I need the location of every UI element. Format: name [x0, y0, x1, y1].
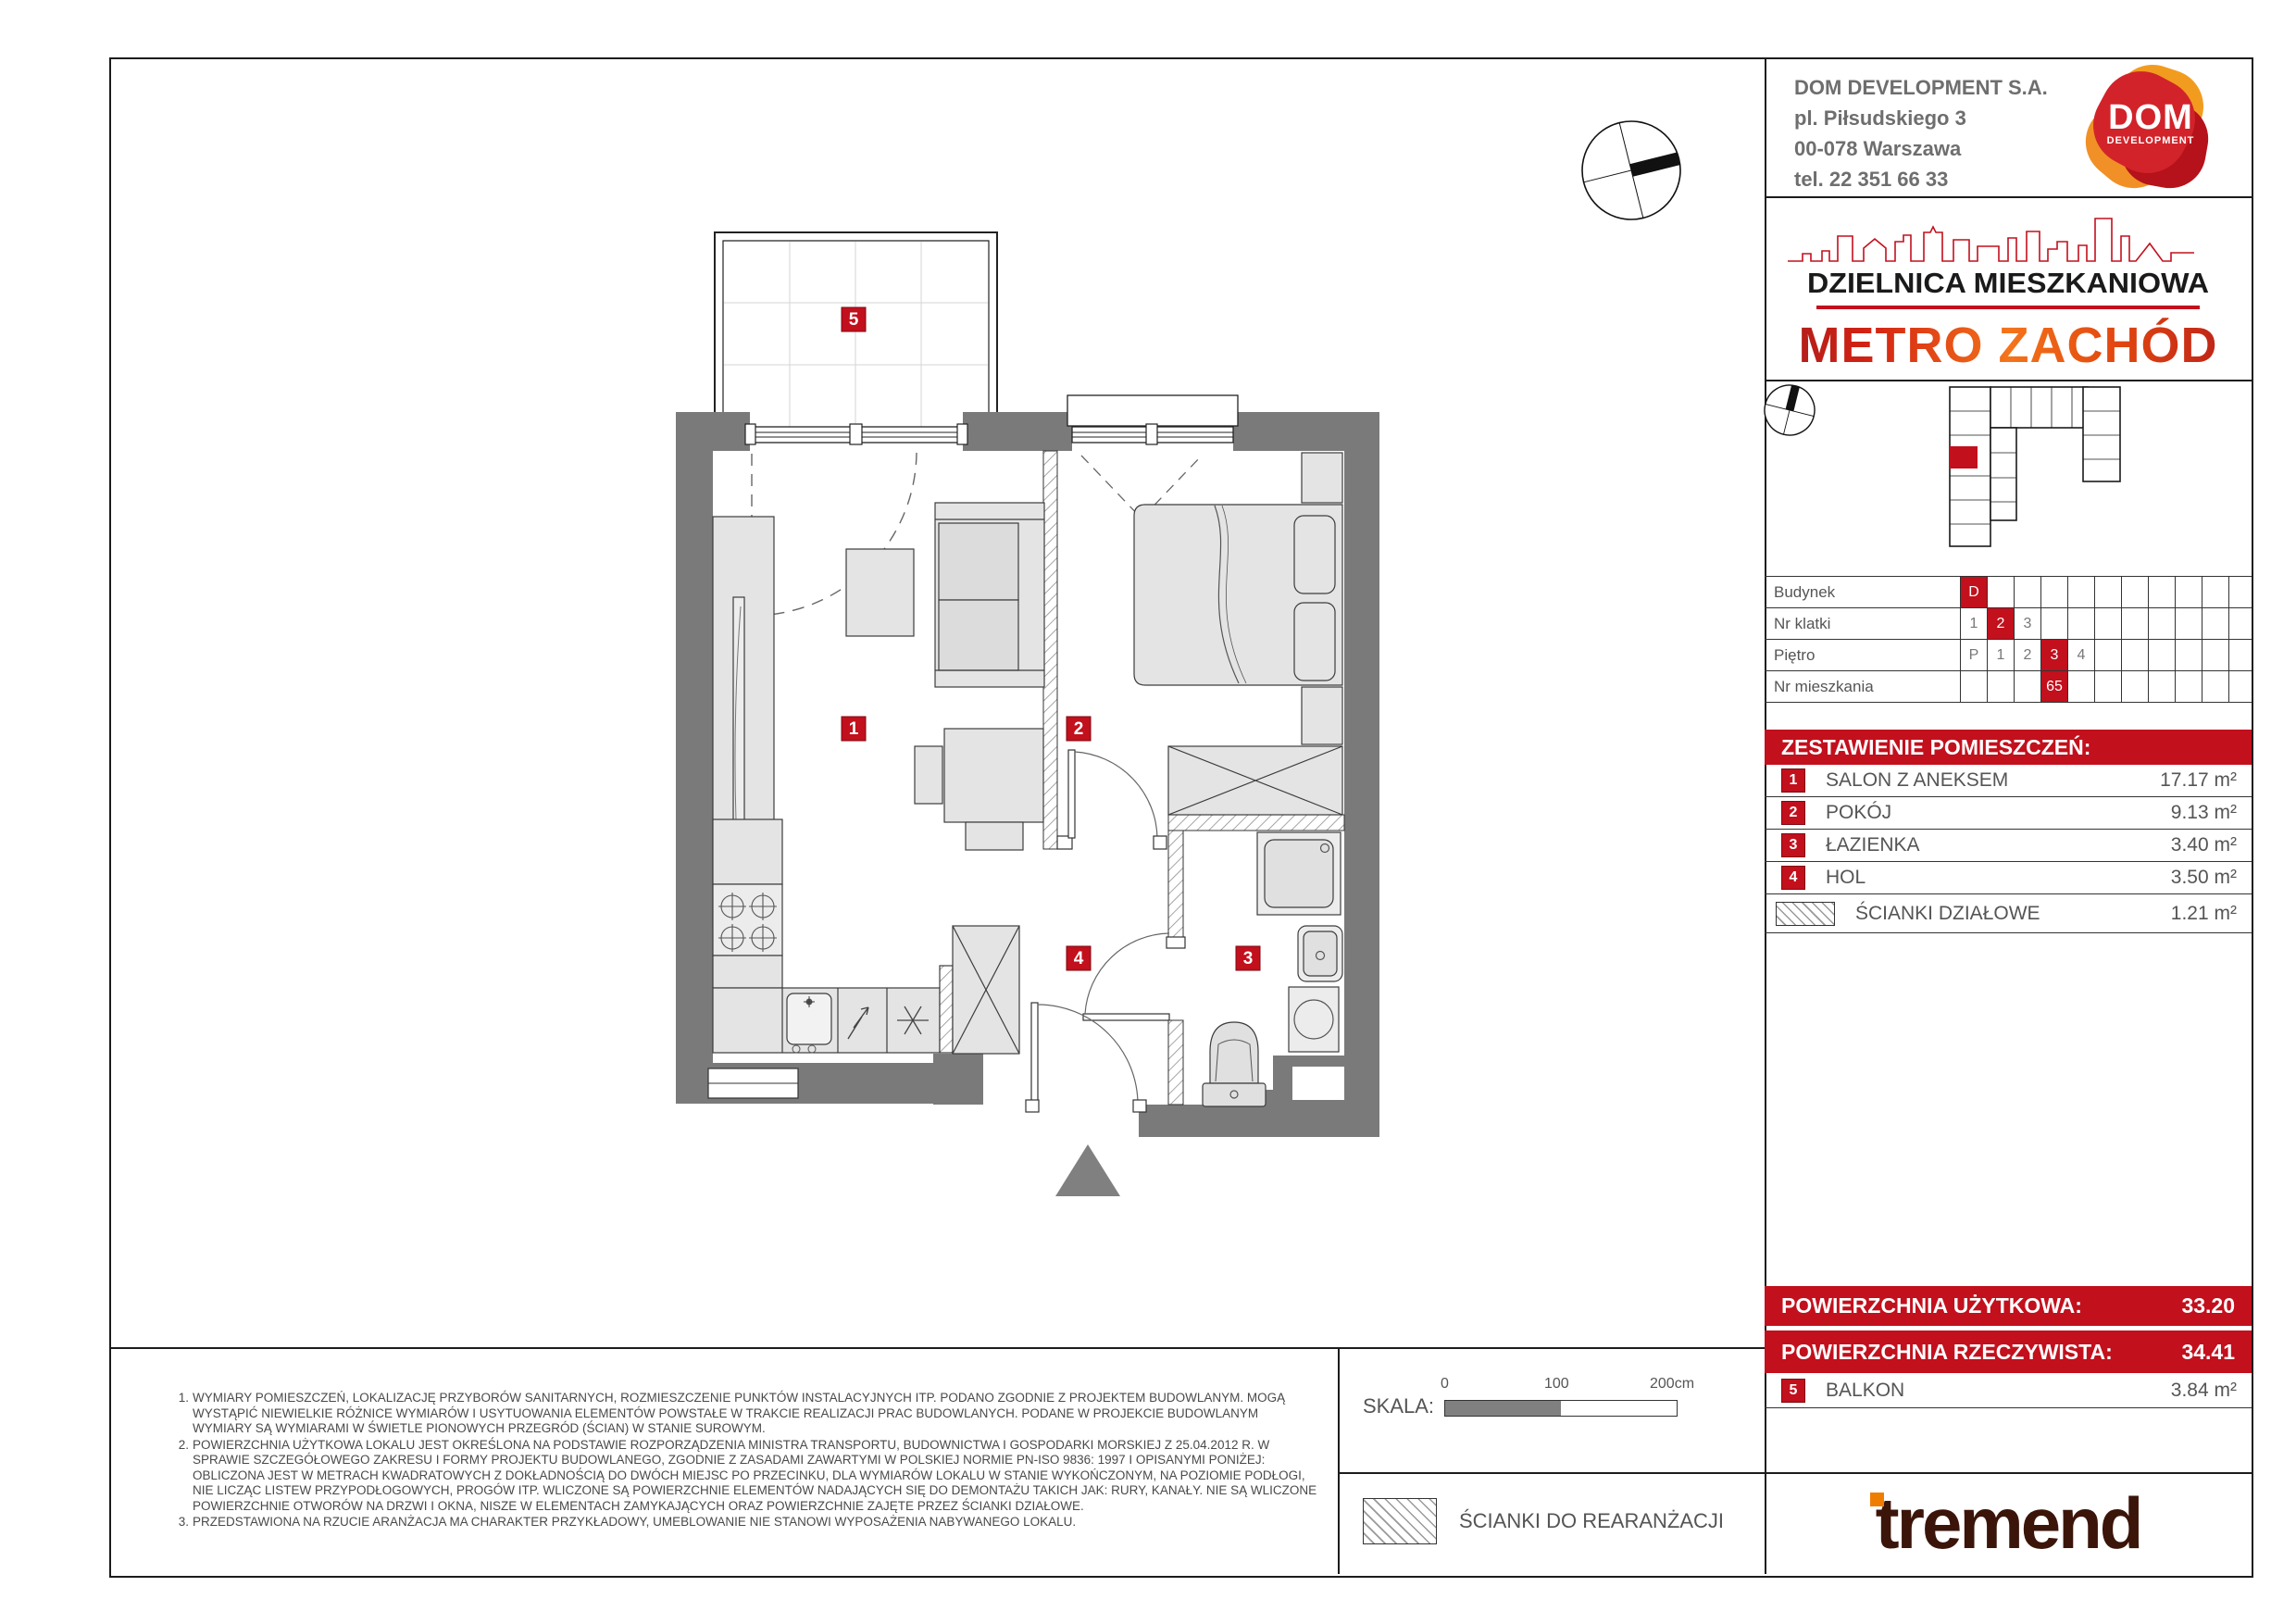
company-street: pl. Piłsudskiego 3	[1794, 103, 2048, 133]
unit-table-cell	[2176, 608, 2202, 639]
scale-tick-0: 0	[1441, 1376, 1449, 1393]
legend-text: ŚCIANKI DO REARANŻACJI	[1459, 1509, 1724, 1533]
unit-table-cell: 1	[1961, 608, 1988, 639]
footnote-text: PRZEDSTAWIONA NA RZUCIE ARANŻACJA MA CHA…	[193, 1515, 1076, 1530]
unit-table-cell: D	[1961, 577, 1988, 607]
unit-table-cell	[2068, 577, 2095, 607]
unit-table-cell	[2015, 671, 2041, 702]
unit-table-cell	[2149, 671, 2176, 702]
room-row: 3ŁAZIENKA3.40 m²	[1765, 830, 2252, 862]
wall-right	[1344, 412, 1379, 1137]
label-lazienka: 3	[1243, 949, 1254, 968]
siteplan-thumbnail	[1944, 383, 2125, 552]
unit-table-cell	[2095, 640, 2122, 670]
unit-table-cell	[2015, 577, 2041, 607]
unit-table-row-label: Nr klatki	[1765, 608, 1961, 639]
unit-table-cell: P	[1961, 640, 1988, 670]
unit-table-row: Nr mieszkania65	[1765, 671, 2252, 703]
room-area: 3.50 m²	[2171, 867, 2237, 889]
wall-step	[933, 1054, 983, 1105]
unit-table-cell: 3	[2015, 608, 2041, 639]
rooms-list: 1SALON Z ANEKSEM17.17 m²2POKÓJ9.13 m²3ŁA…	[1765, 765, 2252, 933]
siteplan-unit-marker	[1950, 446, 1978, 468]
dom-logo-subtext: DEVELOPMENT	[2081, 135, 2220, 146]
pillow	[1294, 603, 1335, 681]
chair	[915, 746, 942, 804]
bedroom-furniture	[1134, 453, 1342, 815]
room-name: SALON Z ANEKSEM	[1826, 769, 2008, 792]
divider-scalebox	[1338, 1347, 1340, 1574]
nightstand	[1302, 453, 1342, 503]
unit-table-row-label: Budynek	[1765, 577, 1961, 607]
unit-table-cell	[2095, 671, 2122, 702]
unit-table-cell	[2149, 577, 2176, 607]
unit-table-cell	[2122, 608, 2149, 639]
wall-top-b	[963, 412, 1072, 451]
scale-tick-200: 200cm	[1650, 1376, 1694, 1393]
unit-table-cell	[2176, 640, 2202, 670]
entrance-arrow	[1055, 1144, 1120, 1196]
unit-table-cell: 65	[2041, 671, 2068, 702]
balcony-area: 3.84 m²	[2171, 1380, 2237, 1402]
label-pokoj: 2	[1074, 719, 1084, 739]
footnotes: 1.WYMIARY POMIESZCZEŃ, LOKALIZACJĘ PRZYB…	[165, 1391, 1317, 1531]
unit-table-cell	[2176, 671, 2202, 702]
dining-table	[944, 729, 1043, 822]
north-compass-icon	[1574, 113, 1689, 228]
partition-walls-row: ŚCIANKI DZIAŁOWE1.21 m²	[1765, 894, 2252, 933]
unit-table-cell	[2041, 608, 2068, 639]
dom-development-logo: DOM DEVELOPMENT	[2081, 61, 2220, 200]
unit-table-row-label: Nr mieszkania	[1765, 671, 1961, 702]
room-number-badge: 2	[1781, 801, 1805, 825]
unit-table-row: BudynekD	[1765, 576, 2252, 608]
footnote-item: 1.WYMIARY POMIESZCZEŃ, LOKALIZACJĘ PRZYB…	[165, 1391, 1317, 1437]
toilet	[1210, 1022, 1258, 1083]
wall-top-a	[676, 412, 750, 451]
room-row: 2POKÓJ9.13 m²	[1765, 797, 2252, 830]
unit-table-cell: 2	[2015, 640, 2041, 670]
footnote-text: POWIERZCHNIA UŻYTKOWA LOKALU JEST OKREŚL…	[193, 1438, 1317, 1515]
footnote-text: WYMIARY POMIESZCZEŃ, LOKALIZACJĘ PRZYBOR…	[193, 1391, 1317, 1437]
room-number-badge: 3	[1781, 833, 1805, 857]
unit-table-cell: 2	[1988, 608, 2015, 639]
unit-table-cell	[2068, 608, 2095, 639]
bedroom-door	[1057, 750, 1167, 849]
pillow	[1294, 516, 1335, 593]
partition-wall	[1043, 451, 1057, 849]
kitchen-end-panel	[940, 966, 953, 1053]
floor-plan: 1 2 3 4 5	[648, 213, 1407, 1213]
unit-table-cell	[1988, 577, 2015, 607]
unit-table-cell	[1988, 671, 2015, 702]
divider-footer	[109, 1347, 1766, 1349]
footnote-item: 2.POWIERZCHNIA UŻYTKOWA LOKALU JEST OKRE…	[165, 1438, 1317, 1515]
district-title: DZIELNICA MIESZKANIOWA	[1754, 267, 2261, 300]
usable-area-value: 33.20	[2181, 1293, 2235, 1318]
real-area-bar: POWIERZCHNIA RZECZYWISTA: 34.41	[1765, 1330, 2252, 1373]
rooms-header-label: ZESTAWIENIE POMIESZCZEŃ:	[1781, 735, 2090, 760]
room-number-badge: 4	[1781, 866, 1805, 890]
partition-row-area: 1.21 m²	[2171, 903, 2237, 925]
unit-table-row: PiętroP1234	[1765, 640, 2252, 671]
label-hol: 4	[1074, 949, 1084, 968]
footnote-number: 1.	[165, 1391, 193, 1437]
washing-machine	[1289, 987, 1339, 1052]
divider-brand	[1765, 380, 2252, 381]
label-balkon: 5	[849, 310, 859, 330]
usable-area-bar: POWIERZCHNIA UŻYTKOWA: 33.20	[1765, 1286, 2252, 1326]
balcony-number-badge: 5	[1781, 1379, 1805, 1403]
company-phone: tel. 22 351 66 33	[1794, 164, 2048, 194]
nightstand	[1302, 687, 1342, 744]
scale-label: SKALA:	[1363, 1394, 1434, 1418]
rooms-header-bar: ZESTAWIENIE POMIESZCZEŃ:	[1765, 730, 2252, 765]
company-city: 00-078 Warszawa	[1794, 133, 2048, 164]
partition-hatch-swatch	[1776, 902, 1835, 926]
unit-table-cell	[2041, 577, 2068, 607]
balcony-row: 5 BALKON 3.84 m²	[1765, 1373, 2252, 1408]
brand-rule	[1816, 306, 2200, 309]
room-area: 9.13 m²	[2171, 802, 2237, 824]
balcony-name: BALKON	[1826, 1380, 1904, 1402]
kitchen	[713, 819, 1019, 1054]
room-area: 17.17 m²	[2160, 769, 2237, 792]
company-name: DOM DEVELOPMENT S.A.	[1794, 72, 2048, 103]
wall-bottom-right	[1139, 1105, 1379, 1137]
chair	[966, 822, 1023, 850]
unit-table-cell: 1	[1988, 640, 2015, 670]
room-number-badge: 1	[1781, 768, 1805, 793]
footnote-number: 3.	[165, 1515, 193, 1530]
skyline-graphic	[1782, 206, 2236, 269]
unit-table-cell	[2149, 608, 2176, 639]
room-row: 1SALON Z ANEKSEM17.17 m²	[1765, 765, 2252, 797]
unit-table-row: Nr klatki123	[1765, 608, 2252, 640]
partition-row-name: ŚCIANKI DZIAŁOWE	[1855, 903, 2040, 925]
project-title: METRO ZACHÓD	[1765, 317, 2252, 374]
scale-bar	[1444, 1400, 1678, 1417]
unit-table-cell: 4	[2068, 640, 2095, 670]
room-name: POKÓJ	[1826, 802, 1891, 824]
unit-table-cell	[2202, 577, 2229, 607]
bedroom-window	[1067, 395, 1238, 518]
company-address: DOM DEVELOPMENT S.A. pl. Piłsudskiego 3 …	[1794, 72, 2048, 194]
dom-logo-text: DOM	[2081, 98, 2220, 138]
real-area-label: POWIERZCHNIA RZECZYWISTA:	[1781, 1340, 2113, 1365]
unit-table-cell: 3	[2041, 640, 2068, 670]
unit-table-cell	[2202, 608, 2229, 639]
tremend-wordmark: tremend	[1876, 1487, 2141, 1559]
wall-niche	[1292, 1067, 1344, 1100]
unit-table-cell	[2122, 577, 2149, 607]
real-area-value: 34.41	[2181, 1340, 2235, 1365]
room-name: HOL	[1826, 867, 1865, 889]
unit-table-cell	[2122, 671, 2149, 702]
unit-table-cell	[2068, 671, 2095, 702]
tremend-logo-box: tremend	[1765, 1472, 2252, 1574]
unit-table-cell	[2202, 671, 2229, 702]
room-area: 3.40 m²	[2171, 834, 2237, 856]
footnote-item: 3.PRZEDSTAWIONA NA RZUCIE ARANŻACJA MA C…	[165, 1515, 1317, 1530]
wall-left	[676, 412, 713, 1104]
usable-area-label: POWIERZCHNIA UŻYTKOWA:	[1781, 1293, 2082, 1318]
scale-tick-100: 100	[1544, 1376, 1569, 1393]
footnote-number: 2.	[165, 1438, 193, 1515]
unit-table-cell	[1961, 671, 1988, 702]
siteplan-compass-icon	[1761, 381, 1818, 439]
unit-table-row-label: Piętro	[1765, 640, 1961, 670]
unit-location-table: BudynekDNr klatki123PiętroP1234Nr mieszk…	[1765, 576, 2252, 703]
label-salon: 1	[849, 719, 859, 739]
legend-hatch-swatch	[1363, 1498, 1437, 1544]
floorplan-sheet: 1 2 3 4 5 DOM DEVELOPMENT S.A. pl. Piłsu…	[0, 0, 2296, 1624]
coffee-table	[846, 549, 914, 636]
room-row: 4HOL3.50 m²	[1765, 862, 2252, 894]
unit-table-cell	[2095, 577, 2122, 607]
unit-table-cell	[2176, 577, 2202, 607]
unit-table-cell	[2122, 640, 2149, 670]
unit-table-cell	[2095, 608, 2122, 639]
room-name: ŁAZIENKA	[1826, 834, 1920, 856]
unit-table-cell	[2202, 640, 2229, 670]
unit-table-cell	[2149, 640, 2176, 670]
